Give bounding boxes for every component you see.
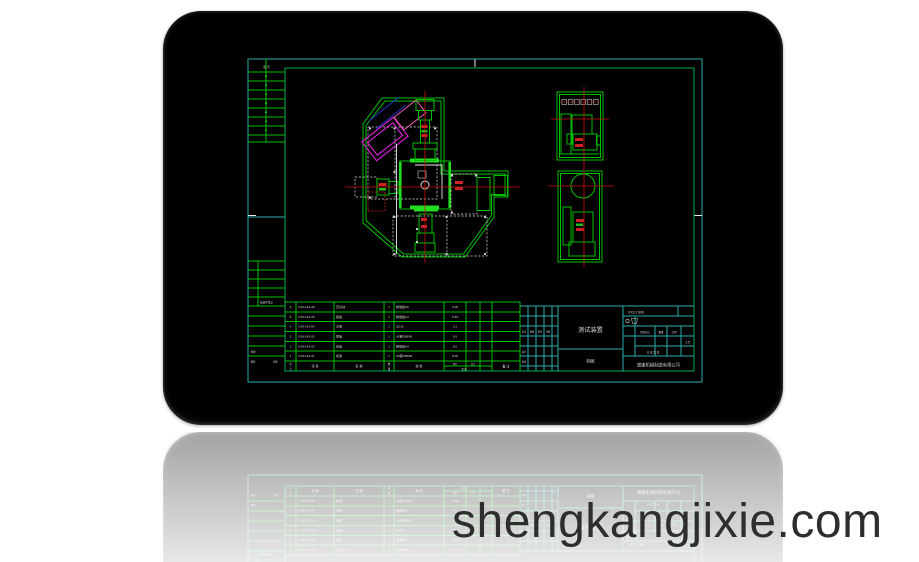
bom-cell-qty: 1	[388, 305, 390, 309]
magenta-part-2	[394, 100, 426, 130]
bom-cell-code: XJN-142-02	[298, 344, 315, 348]
scale-label: 比例	[672, 330, 677, 334]
change-header: 标记	[522, 330, 527, 334]
bom-cell-seq: 5	[290, 315, 292, 319]
bom-cell-name: 支架	[336, 324, 342, 329]
margin-register-label: 借用件登记	[260, 301, 273, 305]
drawing-title: 测试装置	[578, 326, 603, 334]
bom-cell-seq: 1	[290, 354, 292, 358]
bom-header-unit: 单件	[453, 362, 458, 366]
bom-header-name: 名 称	[355, 364, 363, 369]
bom-header-seq-top: 序	[289, 362, 292, 366]
sign-label: 审核	[522, 360, 527, 364]
title-block	[558, 306, 694, 371]
bom-cell-name: 垫板	[336, 314, 342, 319]
bom-cell-seq: 6	[290, 305, 292, 309]
side-view-bottom	[548, 171, 614, 262]
bom-cell-seq: 3	[290, 335, 292, 339]
scene: 签 字 借用件登记 描图 描校 日期	[0, 0, 919, 562]
corner-markers	[369, 128, 486, 256]
company-name: 盛康机械制造有限公司	[637, 362, 680, 369]
bom-cell-code: XJN-142-05	[298, 315, 315, 319]
weight-label: 重量	[659, 330, 664, 334]
magenta-part	[362, 117, 408, 161]
bom-cell-name: 定位块	[336, 304, 345, 309]
bom-cell-weight: 3.2	[453, 325, 458, 329]
scale-value: 1:5	[685, 341, 690, 345]
drawing-frame	[248, 59, 702, 382]
bom-cell-material: Q235	[396, 325, 404, 329]
bom-cell-weight: 0.5	[453, 335, 458, 339]
bom-cell-weight: 8.05	[452, 354, 458, 358]
bom-cell-seq: 4	[290, 325, 292, 329]
bom-cell-qty: 1	[388, 315, 390, 319]
change-header: 处数	[530, 330, 535, 334]
bom-cell-qty: 1	[388, 354, 390, 358]
bom-header-seq-bottom: 号	[289, 367, 292, 371]
bom-cell-qty: 1	[388, 344, 390, 348]
sheets-label: 共 张 第 张	[647, 351, 660, 355]
stage-label: 阶段标记	[640, 330, 650, 334]
bom-cell-material: 45钢GB699	[396, 353, 412, 358]
bom-cell-code: XJN-142-06	[298, 305, 315, 309]
bom-header-qty-top: 数	[388, 362, 391, 366]
bom-cell-material: 橡胶板δ6	[396, 304, 409, 309]
margin-date-label: 日期	[273, 360, 278, 364]
drawing-code: VX3.2 808	[628, 310, 644, 314]
bom-cell-qty: 1	[388, 335, 390, 339]
bom-cell-name: 底板	[336, 334, 342, 339]
bom-cell-code: XJN-142-03	[298, 335, 315, 339]
watermark-text: shengkangjixie.com	[452, 494, 883, 549]
bom-cell-seq: 2	[290, 344, 292, 348]
margin-strip: 签 字 借用件登记 描图 描校 日期	[248, 59, 285, 364]
bom-header-remark: 备 注	[502, 364, 510, 369]
bom-header-material: 材 料	[415, 364, 423, 369]
bom-cell-weight: 8.0	[453, 344, 458, 348]
bom-cell-material: 45钢GB699	[396, 334, 412, 339]
margin-check-label: 描校	[251, 360, 256, 364]
bom-cell-weight: 0.83	[452, 315, 458, 319]
title-block-text: VX3.2 808 测试装置 制图 阶段标记 重量 比例 1:5 共 张 第 张…	[578, 310, 690, 368]
bom-cell-name: 机架	[336, 353, 342, 358]
bom-cell-code: XJN-142-01	[298, 354, 315, 358]
bom-header-total: 总计	[471, 362, 476, 366]
bom-cell-material: 橡胶板δ4	[396, 343, 409, 348]
bom-cell-weight: 0.05	[452, 305, 458, 309]
bom-cell-name: 压板	[336, 343, 342, 348]
plan-view	[345, 91, 520, 263]
drawing-subtitle: 制图	[587, 358, 595, 364]
bom-header-qty-bottom: 量	[388, 367, 391, 371]
bom-header-code: 代 号	[311, 364, 318, 369]
cad-screen: 签 字 借用件登记 描图 描校 日期	[163, 11, 783, 425]
margin-trace-label: 描图	[251, 350, 256, 354]
sign-label: 设计	[522, 350, 527, 354]
side-view-top	[551, 92, 609, 160]
bom-cell-material: 橡胶板δ4	[396, 314, 409, 319]
monitor-bezel: 签 字 借用件登记 描图 描校 日期	[163, 11, 783, 425]
change-header: 签名	[538, 330, 542, 334]
bom-cell-qty: 1	[388, 325, 390, 329]
projection-symbol-icon	[626, 319, 638, 324]
change-header: 日期	[546, 330, 551, 334]
bom-cell-code: XJN-142-04	[298, 325, 315, 329]
margin-top-label: 签 字	[263, 64, 270, 69]
